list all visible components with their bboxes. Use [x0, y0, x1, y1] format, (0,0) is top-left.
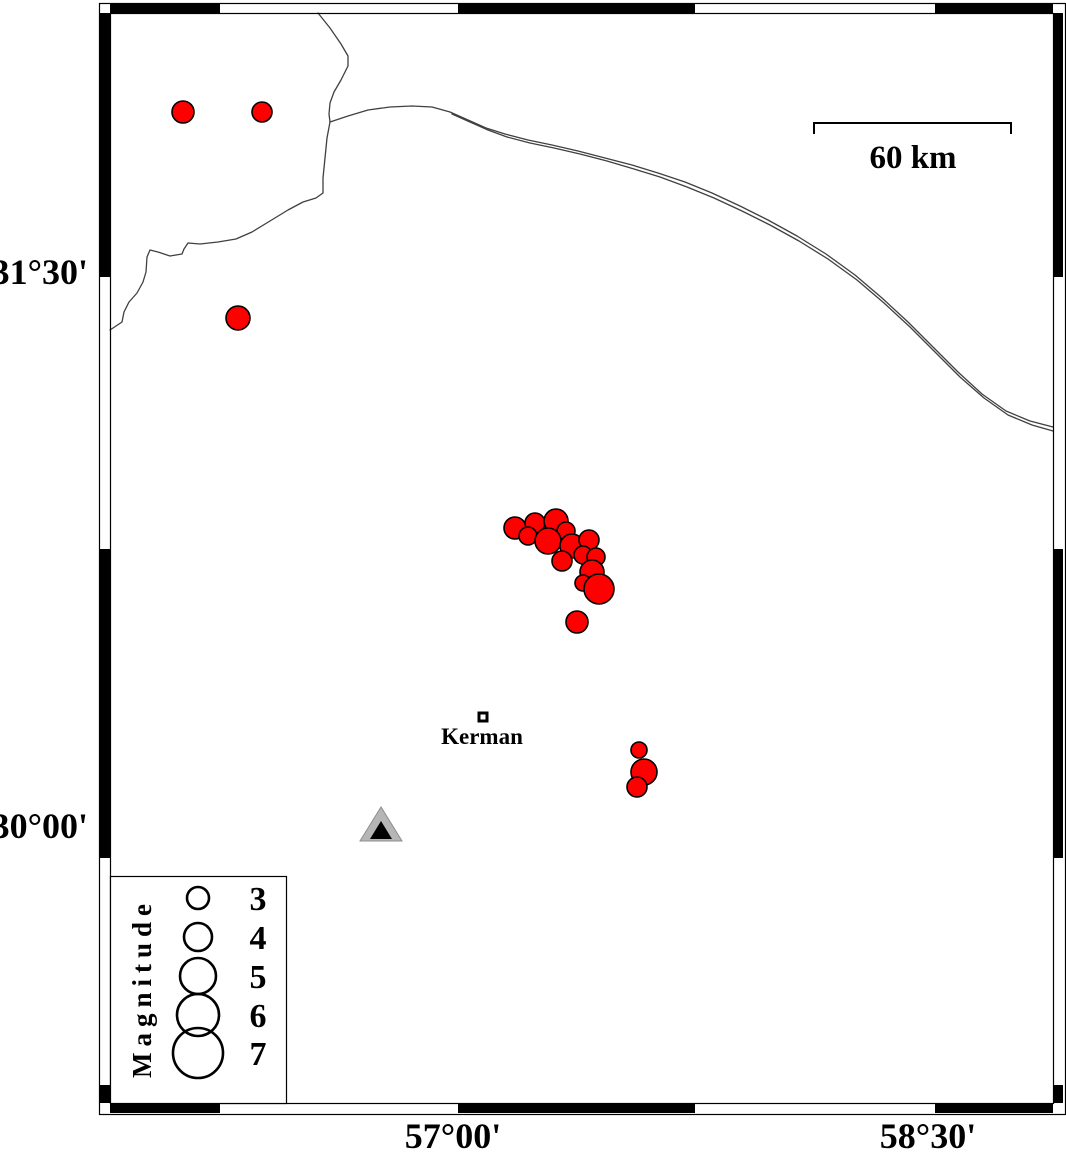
scale-bar-label: 60 km	[869, 140, 956, 176]
earthquake-marker	[535, 528, 561, 554]
boundary-lines	[110, 13, 1053, 431]
earthquake-marker	[566, 611, 588, 633]
lon-label-57-00: 57°00'	[405, 1116, 501, 1154]
lat-label-31-30: 31°30'	[0, 252, 88, 292]
seismicity-map-figure: 60 km Kerman 31°30' 30°00' 57°00' 58°30'…	[0, 0, 1066, 1154]
lat-label-30-00: 30°00'	[0, 806, 88, 846]
earthquake-markers	[172, 101, 657, 797]
frame-tick-segment	[110, 1104, 220, 1113]
frame-tick-segment	[458, 1104, 695, 1113]
legend-label-4: 4	[250, 920, 267, 957]
frame-tick-segment	[935, 4, 1053, 13]
earthquake-marker	[584, 574, 614, 604]
frame-tick-segment	[1054, 1085, 1063, 1103]
map-canvas: 60 km Kerman 31°30' 30°00' 57°00' 58°30'…	[0, 0, 1066, 1154]
frame-tick-segment	[458, 4, 695, 13]
earthquake-marker	[631, 742, 647, 758]
frame-tick-segment	[110, 4, 220, 13]
frame-tick-segment	[100, 13, 110, 277]
earthquake-marker	[226, 306, 250, 330]
legend-label-7: 7	[250, 1036, 267, 1073]
magnitude-legend: Magnitude 3 4 5 6 7	[111, 877, 287, 1104]
city-square	[479, 713, 487, 721]
earthquake-marker	[252, 102, 272, 122]
lon-label-58-30: 58°30'	[880, 1116, 976, 1154]
frame-tick-segment	[1054, 549, 1063, 858]
frame-tick-segment	[935, 1104, 1053, 1113]
legend-label-5: 5	[250, 959, 267, 996]
earthquake-marker	[552, 551, 572, 571]
station-triangle-icon	[360, 807, 402, 841]
scale-bar: 60 km	[814, 123, 1011, 176]
frame-tick-segment	[100, 1085, 110, 1103]
earthquake-marker	[627, 777, 647, 797]
city-marker: Kerman	[441, 713, 523, 749]
legend-title: Magnitude	[127, 898, 157, 1078]
scale-bar-bracket	[814, 123, 1011, 134]
legend-label-6: 6	[250, 998, 267, 1035]
legend-label-3: 3	[250, 881, 267, 918]
city-label: Kerman	[441, 724, 523, 749]
earthquake-marker	[172, 101, 194, 123]
frame-tick-segment	[1054, 13, 1063, 277]
boundary-line	[452, 114, 1053, 431]
frame-tick-segment	[100, 549, 110, 858]
boundary-line	[110, 13, 348, 330]
